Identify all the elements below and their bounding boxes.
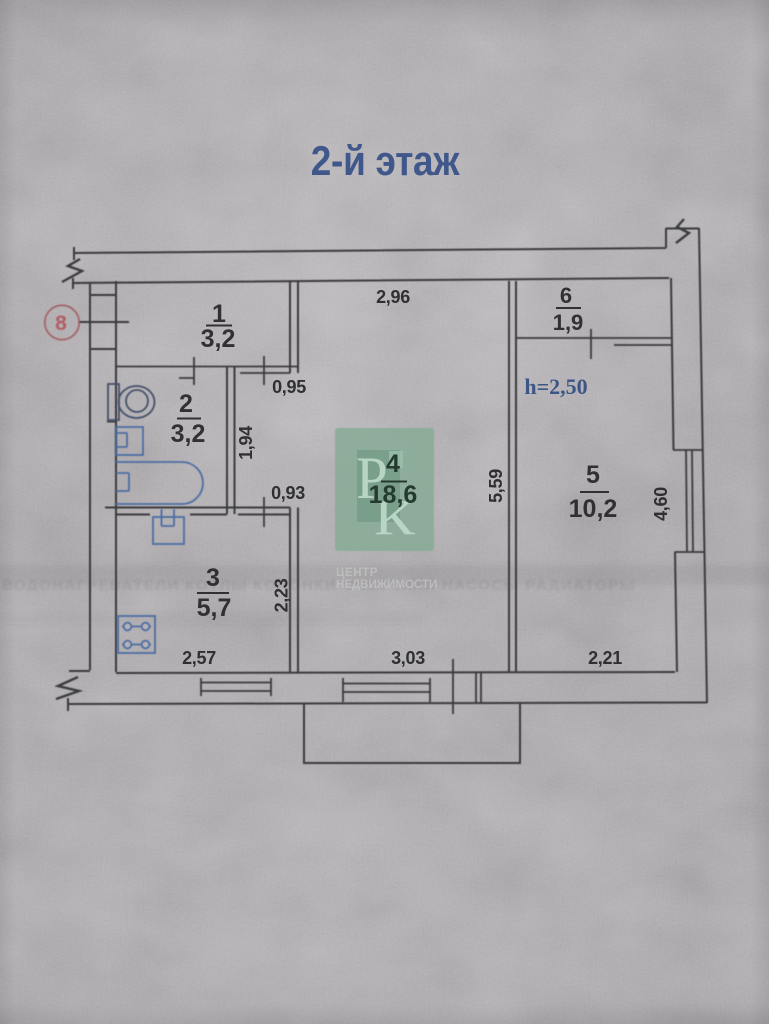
svg-text:4: 4 [386,450,400,478]
svg-text:2-й этаж: 2-й этаж [311,138,461,185]
svg-text:10,2: 10,2 [569,495,618,523]
svg-text:5: 5 [586,461,600,489]
svg-text:2,23: 2,23 [272,578,292,612]
svg-text:ВОДОНАГРЕВАТЕЛИ КОТЛЫ КОЛОНК: ВОДОНАГРЕВАТЕЛИ КОТЛЫ КОЛОНКИ СЧЕТЧИКИ Н… [2,577,636,594]
svg-text:3: 3 [206,564,220,592]
svg-text:8: 8 [55,312,67,335]
svg-text:h=2,50: h=2,50 [524,374,587,399]
svg-text:НЕДВИЖИМОСТИ: НЕДВИЖИМОСТИ [336,579,437,591]
svg-text:3,2: 3,2 [171,420,206,448]
svg-text:0,93: 0,93 [271,483,305,503]
svg-text:4,60: 4,60 [651,487,671,521]
svg-text:0,95: 0,95 [272,377,306,397]
svg-text:2,21: 2,21 [588,648,622,668]
svg-text:3,2: 3,2 [201,325,236,353]
svg-text:2: 2 [179,390,193,418]
svg-text:3,03: 3,03 [391,648,425,668]
svg-text:ЦЕНТР: ЦЕНТР [336,567,378,579]
svg-text:6: 6 [560,283,572,308]
svg-text:5,59: 5,59 [486,469,506,503]
svg-text:1,94: 1,94 [236,426,256,460]
svg-text:5,7: 5,7 [197,594,232,622]
svg-text:2,57: 2,57 [182,648,216,668]
svg-text:1: 1 [212,300,226,328]
svg-text:2,96: 2,96 [376,287,410,307]
svg-text:1,9: 1,9 [553,310,584,335]
svg-text:18,6: 18,6 [369,481,418,509]
